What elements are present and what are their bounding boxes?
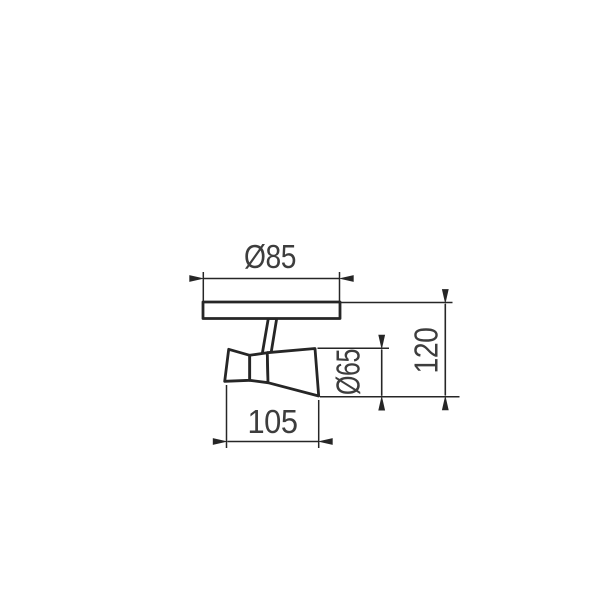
drawing-canvas: Ø85 105 Ø65 120 bbox=[0, 0, 600, 600]
dimension-head-length: 105 bbox=[227, 385, 319, 448]
dimension-label-plate-diameter: Ø85 bbox=[244, 238, 296, 275]
dimension-head-diameter: Ø65 bbox=[318, 348, 390, 396]
lamp-head-cone bbox=[267, 349, 318, 397]
dimension-label-head-length: 105 bbox=[248, 403, 298, 440]
stem bbox=[262, 319, 276, 354]
lamp-head-rear-cap bbox=[225, 349, 250, 381]
dimension-drawing: Ø85 105 Ø65 120 bbox=[0, 0, 600, 600]
lamp-head-joint bbox=[250, 353, 268, 383]
mounting-plate bbox=[203, 302, 340, 319]
dimension-plate-diameter: Ø85 bbox=[203, 238, 339, 301]
dimension-label-head-diameter: Ø65 bbox=[330, 349, 367, 395]
dimension-label-total-height: 120 bbox=[408, 327, 445, 373]
